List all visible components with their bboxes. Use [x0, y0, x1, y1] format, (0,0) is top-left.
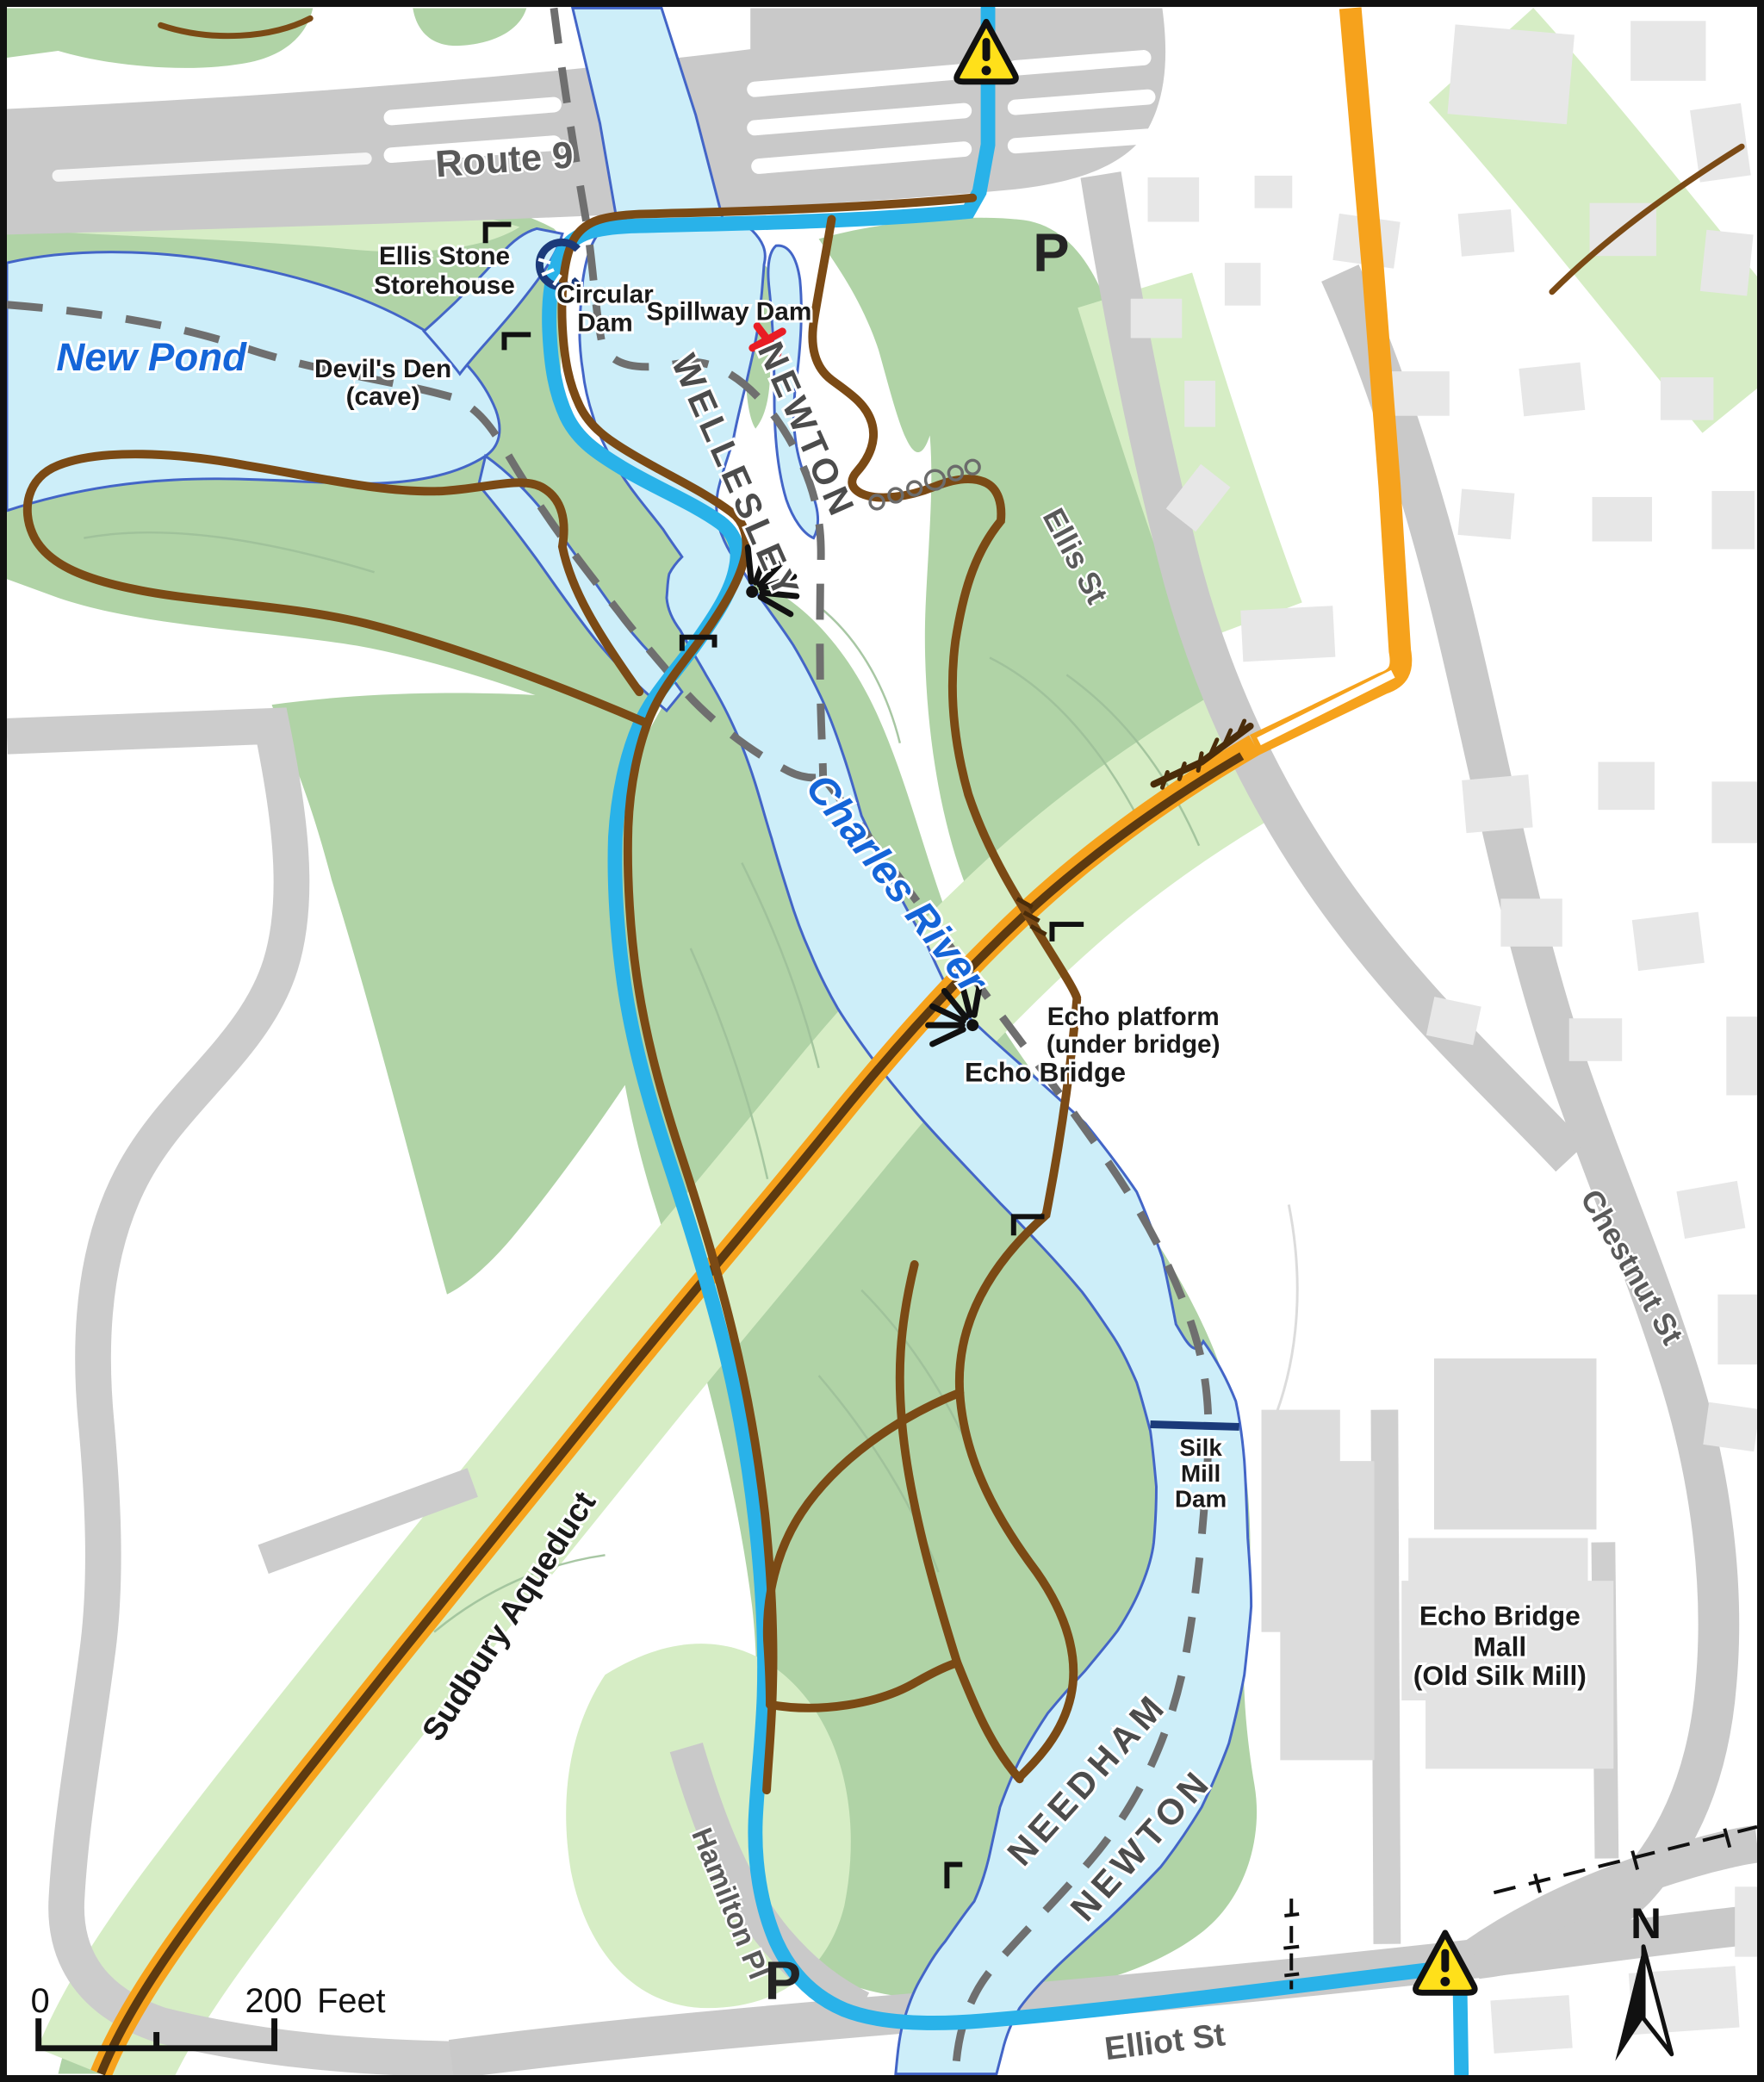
scale-unit: Feet [317, 1982, 385, 2020]
north-label: N [1630, 1899, 1662, 1948]
parking-icon-hamilton: P [765, 1951, 801, 2011]
mall-label-1: Echo Bridge [1419, 1600, 1581, 1631]
map-canvas: Route 9 New Pond Ellis Stone Storehouse … [7, 7, 1757, 2075]
parking-icon-route9: P [1033, 223, 1069, 283]
aqueduct-open-core [1259, 674, 1394, 741]
silk-mill-dam-label-1: Silk [1179, 1434, 1222, 1461]
mall-label-3: (Old Silk Mill) [1413, 1660, 1587, 1691]
ellis-storehouse-label-2: Storehouse [374, 271, 515, 300]
echo-platform-label-2: (under bridge) [1047, 1030, 1221, 1059]
park-west-wedge [272, 693, 647, 1295]
circular-dam-label-2: Dam [577, 308, 632, 337]
mall-label-2: Mall [1473, 1631, 1526, 1662]
elliot-st-label: Elliot St [1102, 2016, 1227, 2066]
contour-white-area [1264, 1205, 1298, 1445]
park-top-patch-1 [413, 8, 526, 46]
spillway-dam-label: Spillway Dam [647, 298, 812, 326]
silk-mill-dam-label-3: Dam [1175, 1486, 1227, 1513]
mall-driveway-west [1384, 1410, 1387, 1944]
building-old-silk-mill-west [1262, 1410, 1375, 1761]
echo-platform-label-1: Echo platform [1047, 1003, 1220, 1031]
devils-den-label-1: Devil's Den [314, 355, 451, 383]
scale-distance: 200 [245, 1982, 301, 2020]
trail-map: Route 9 New Pond Ellis Stone Storehouse … [0, 0, 1764, 2082]
devils-den-label-2: (cave) [346, 382, 420, 411]
scale-zero: 0 [31, 1982, 50, 2020]
ellis-storehouse-label-1: Ellis Stone [379, 242, 510, 270]
echo-bridge-label: Echo Bridge [965, 1057, 1126, 1088]
silk-mill-dam-icon [1151, 1424, 1239, 1426]
silk-mill-dam-label-2: Mill [1181, 1460, 1221, 1487]
new-pond-label: New Pond [56, 335, 247, 379]
park-top-left-corner [7, 8, 313, 67]
circular-dam-label-1: Circular [556, 281, 654, 309]
